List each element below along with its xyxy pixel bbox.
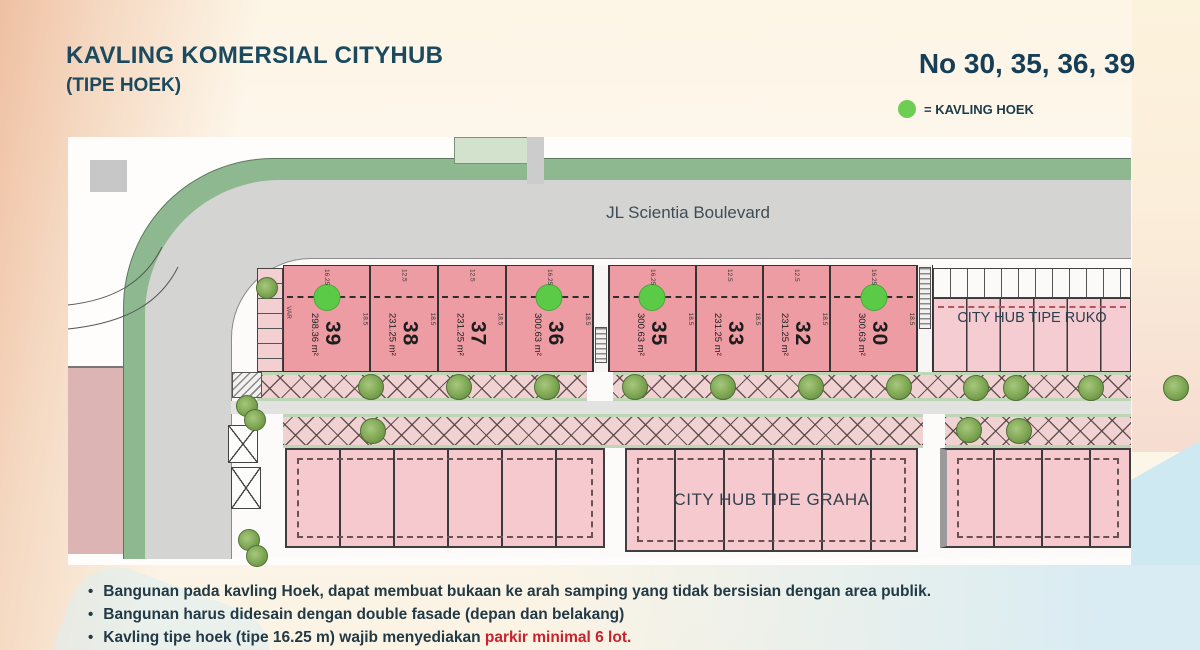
lot-36: 16.2518.536300.63 m²	[506, 265, 593, 372]
walkway-corridor	[593, 265, 609, 372]
tree-icon	[963, 375, 989, 401]
tree-icon	[244, 409, 266, 431]
graha-label: CITY HUB TIPE GRAHA	[627, 450, 916, 550]
lot-number: 39	[320, 321, 344, 346]
legend: = KAVLING HOEK	[898, 100, 1034, 118]
bullet-icon: •	[88, 580, 93, 603]
lot-label: 37231.25 m²	[439, 298, 505, 369]
lot-38: 12.518.538231.25 m²	[370, 265, 438, 372]
lot-number: 33	[723, 321, 747, 346]
ruko-setback-line	[938, 306, 1126, 308]
lot-width-label: 16.25	[870, 269, 877, 285]
note-item: •Bangunan harus didesain dengan double f…	[88, 603, 1138, 626]
lot-area: 231.25 m²	[387, 313, 398, 356]
tree-icon	[360, 418, 386, 444]
note-item: •Bangunan pada kavling Hoek, dapat membu…	[88, 580, 1138, 603]
tree-icon	[1003, 375, 1029, 401]
ruko-block: CITY HUB TIPE RUKO	[933, 298, 1131, 372]
tree-icon	[1163, 375, 1189, 401]
legend-label: = KAVLING HOEK	[924, 102, 1034, 117]
tree-icon	[886, 374, 912, 400]
lot-area: 231.25 m²	[454, 313, 465, 356]
lot-number: 37	[465, 321, 489, 346]
lot-label: 33231.25 m²	[697, 298, 762, 369]
graha-block-right	[940, 448, 1131, 548]
lot-number: 32	[790, 321, 814, 346]
note-text: Bangunan harus didesain dengan double fa…	[103, 606, 624, 623]
map-grey-square	[90, 160, 127, 192]
lot-label: 30300.63 m²	[831, 298, 916, 369]
lot-number: 30	[867, 321, 891, 346]
tree-icon	[358, 374, 384, 400]
lot-label: 39298.36 m²	[284, 298, 369, 369]
tree-icon	[1078, 375, 1104, 401]
site-map: JL Scientia Boulevard 16.2518.5VAR39298.…	[68, 137, 1131, 565]
note-highlight: parkir minimal 6 lot.	[485, 629, 631, 646]
notes-list: •Bangunan pada kavling Hoek, dapat membu…	[88, 580, 1138, 649]
lot-number: 36	[543, 321, 567, 346]
lot-label: 32231.25 m²	[764, 298, 829, 369]
lot-label: 36300.63 m²	[507, 298, 592, 369]
graha-setback-line	[957, 458, 1119, 538]
lot-area: 231.25 m²	[712, 313, 723, 356]
lot-area: 231.25 m²	[779, 313, 790, 356]
note-text: Kavling tipe hoek (tipe 16.25 m) wajib m…	[103, 629, 485, 646]
utility-box	[231, 467, 261, 509]
stairs-icon	[595, 327, 607, 363]
lot-number: 38	[398, 321, 422, 346]
note-item: •Kavling tipe hoek (tipe 16.25 m) wajib …	[88, 626, 1138, 649]
stairs-icon	[919, 267, 931, 329]
lot-numbers-heading: No 30, 35, 36, 39	[918, 48, 1136, 80]
lot-32: 12.518.532231.25 m²	[763, 265, 830, 372]
paved-walkway	[257, 372, 1131, 401]
graha-setback-line	[297, 458, 593, 538]
tree-icon	[446, 374, 472, 400]
tree-icon	[956, 417, 982, 443]
slide: KAVLING KOMERSIAL CITYHUB (TIPE HOEK) No…	[0, 0, 1200, 650]
tree-icon	[246, 545, 268, 567]
access-road	[231, 401, 1131, 414]
lot-width-label: 12.5	[468, 269, 475, 282]
lot-width-label: 16.25	[323, 269, 330, 285]
ruko-parking-strip	[933, 268, 1131, 298]
page-title: KAVLING KOMERSIAL CITYHUB	[66, 42, 443, 70]
lot-width-label: 12.5	[726, 269, 733, 282]
bullet-icon: •	[88, 603, 93, 626]
lots-row-2: 16.2518.535300.63 m²12.518.533231.25 m²1…	[609, 265, 917, 372]
lot-area: 300.63 m²	[532, 313, 543, 356]
lot-width-label: 16.25	[649, 269, 656, 285]
tree-icon	[1006, 418, 1032, 444]
bullet-icon: •	[88, 626, 93, 649]
page-subtitle: (TIPE HOEK)	[66, 75, 181, 97]
walkway-corridor	[917, 265, 933, 372]
graha-block-left	[285, 448, 605, 548]
lot-number: 35	[646, 321, 670, 346]
lot-39: 16.2518.5VAR39298.36 m²	[283, 265, 370, 372]
lot-width-label: 12.5	[793, 269, 800, 282]
lots-row-1: 16.2518.5VAR39298.36 m²12.518.538231.25 …	[283, 265, 593, 372]
tree-icon	[622, 374, 648, 400]
lot-35: 16.2518.535300.63 m²	[609, 265, 696, 372]
note-text: Bangunan pada kavling Hoek, dapat membua…	[103, 583, 931, 600]
lot-33: 12.518.533231.25 m²	[696, 265, 763, 372]
lot-37: 12.518.537231.25 m²	[438, 265, 506, 372]
park-rectangle	[454, 137, 534, 164]
adjacent-parcel	[68, 366, 123, 554]
lot-label: 35300.63 m²	[610, 298, 695, 369]
road-label: JL Scientia Boulevard	[548, 203, 828, 223]
tree-icon	[798, 374, 824, 400]
ruko-label: CITY HUB TIPE RUKO	[952, 309, 1112, 371]
lot-30: 16.2518.530300.63 m²	[830, 265, 917, 372]
walkway-gap	[587, 372, 613, 401]
lot-label: 38231.25 m²	[371, 298, 437, 369]
tree-icon	[534, 374, 560, 400]
lot-area: 300.63 m²	[856, 313, 867, 356]
gate-strip	[527, 137, 544, 184]
lot-area: 300.63 m²	[635, 313, 646, 356]
lot-width-label: 16.25	[546, 269, 553, 285]
tree-icon	[256, 277, 278, 299]
graha-block-middle: CITY HUB TIPE GRAHA	[625, 448, 918, 552]
kavling-hoek-dot-icon	[898, 100, 916, 118]
lot-area: 298.36 m²	[309, 313, 320, 356]
tree-icon	[710, 374, 736, 400]
lot-width-label: 12.5	[401, 269, 408, 282]
